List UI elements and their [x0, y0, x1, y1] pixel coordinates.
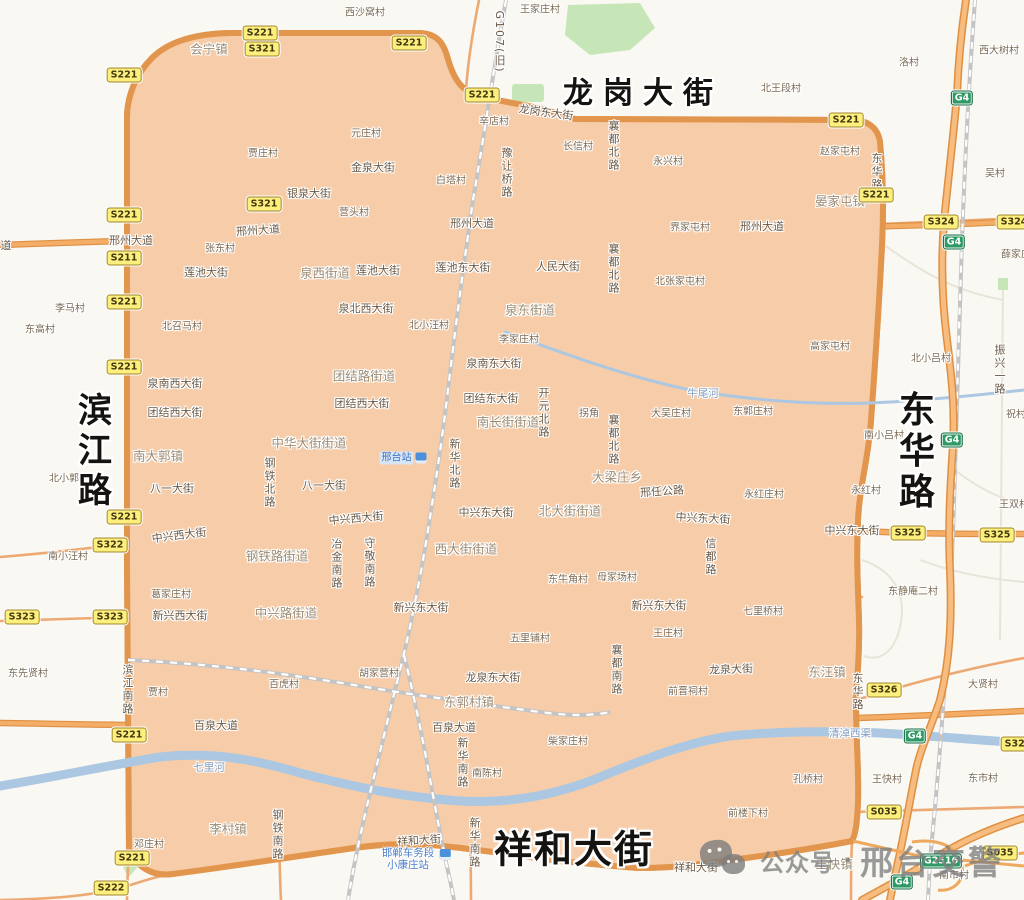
watermark-suffix: 邢台交警	[860, 836, 1004, 884]
road-label: 八一大街	[150, 480, 194, 496]
town-label: 南大郭镇	[133, 446, 183, 465]
village-label: 李马村	[55, 300, 85, 315]
route-shield-s325: S325	[891, 526, 926, 541]
water-label: 七里河	[193, 760, 225, 775]
village-label: 西沙窝村	[345, 4, 385, 19]
village-label: 贾村	[148, 684, 168, 699]
station-line1: 邯郸车务段	[382, 847, 435, 859]
town-label: 大梁庄乡	[592, 467, 642, 486]
village-label: 北召马村	[162, 318, 202, 333]
town-label: 中兴路街道	[255, 603, 318, 622]
watermark-separator: ·	[843, 846, 852, 874]
road-label: 邢任公路	[639, 481, 684, 500]
town-label: 团结路街道	[333, 366, 396, 385]
village-label: 前晋祠村	[668, 683, 708, 698]
map-label-layer: 邢台站 邯郸车务段 小康庄站 龙岗东大街金泉大街银泉大街道邢州大道邢州大道邢州大…	[0, 0, 1024, 900]
town-label: 会宁镇	[190, 39, 228, 58]
route-shield-s324: S324	[997, 215, 1024, 230]
route-shield-s324: S324	[924, 215, 959, 230]
village-label: 张东村	[205, 240, 235, 255]
train-station-icon	[439, 849, 450, 860]
village-label: 百虎村	[269, 676, 299, 691]
railway-station-label-xingtai: 邢台站	[380, 452, 427, 465]
road-label: 团结东大街	[464, 390, 519, 406]
village-label: 五里铺村	[510, 630, 550, 645]
route-shield-s322: S322	[93, 538, 128, 553]
road-label-vertical: 新华南路	[454, 737, 470, 789]
village-label: 母家场村	[597, 569, 637, 584]
route-shield-s222: S222	[94, 881, 129, 896]
route-shield-s326: S326	[867, 683, 902, 698]
village-label: 界家屯村	[670, 219, 710, 234]
village-label: 葛家庄村	[151, 586, 191, 601]
road-label-vertical: 信都路	[702, 538, 718, 577]
road-label: 龙泉东大街	[466, 669, 521, 685]
village-label: 赵家屯村	[820, 143, 860, 158]
village-label: 王庄村	[653, 625, 683, 640]
village-label: 贾庄村	[248, 145, 278, 160]
road-label: 中兴东大街	[825, 522, 880, 538]
village-label: 长信村	[563, 138, 593, 153]
route-shield-s321: S321	[245, 42, 280, 57]
village-label: 王双村	[999, 496, 1024, 511]
route-shield-s221: S221	[107, 510, 142, 525]
village-label: 辛店村	[479, 113, 509, 128]
road-label: 中兴东大街	[675, 509, 731, 528]
road-label: 银泉大街	[287, 185, 331, 201]
town-label: 南长街街道	[477, 412, 540, 431]
road-label-vertical: G107(旧)	[491, 10, 507, 73]
road-label: 新兴东大街	[394, 599, 449, 615]
watermark-prefix: 公众号	[760, 843, 835, 878]
road-label: 邢州大道	[740, 218, 784, 234]
road-label-vertical: 襄都北路	[605, 414, 621, 466]
village-label: 李家庄村	[499, 331, 539, 346]
village-label: 北张家屯村	[655, 273, 705, 288]
road-label-vertical: 冶金南路	[328, 538, 344, 590]
route-shield-g4: G4	[943, 235, 965, 250]
road-label-vertical: 东华路	[849, 673, 865, 712]
village-label: 薛家庄	[1001, 246, 1024, 261]
village-label: 东牛角村	[548, 571, 588, 586]
village-label: 邓庄村	[134, 836, 164, 851]
station-name: 邢台站	[380, 452, 414, 465]
road-label: 邢州大道	[450, 215, 494, 231]
route-shield-s221: S221	[465, 88, 500, 103]
road-label: 泉南西大街	[148, 375, 203, 391]
village-label: 前楼下村	[728, 805, 768, 820]
route-shield-s221: S221	[829, 113, 864, 128]
boundary-road-label-big: 滨江路	[68, 392, 117, 512]
village-label: 孔桥村	[793, 771, 823, 786]
village-label: 南小汪村	[48, 548, 88, 563]
road-label: 邢州大道	[109, 232, 153, 248]
village-label: 拐角	[579, 405, 599, 420]
route-shield-s323: S323	[5, 610, 40, 625]
road-label: 新兴西大街	[153, 607, 208, 623]
village-label: 北小汪村	[409, 317, 449, 332]
village-label: 大吴庄村	[651, 405, 691, 420]
road-label-vertical: 守敬南路	[361, 537, 377, 589]
route-shield-s221: S221	[859, 188, 894, 203]
village-label: 东静庵二村	[888, 583, 938, 598]
village-label: 永红庄村	[744, 486, 784, 501]
road-label-vertical: 新华北路	[446, 438, 462, 490]
road-label-vertical: 振兴一路	[991, 344, 1007, 396]
village-label: 北王段村	[761, 80, 801, 95]
route-shield-s325: S325	[1001, 737, 1024, 752]
water-label: 清淖西渠	[829, 726, 871, 741]
village-label: 王快村	[872, 771, 902, 786]
town-label: 泉西街道	[300, 263, 350, 282]
map-canvas: 邢台站 邯郸车务段 小康庄站 龙岗东大街金泉大街银泉大街道邢州大道邢州大道邢州大…	[0, 0, 1024, 900]
village-label: 胡家营村	[359, 665, 399, 680]
boundary-road-label-big: 东华路	[887, 391, 939, 514]
route-shield-s221: S221	[392, 36, 427, 51]
town-label: 泉东街道	[505, 300, 555, 319]
road-label-vertical: 襄都南路	[608, 644, 624, 696]
watermark: 公众号 · 邢台交警	[700, 836, 1004, 884]
route-shield-s221: S221	[107, 208, 142, 223]
village-label: 东先贤村	[8, 665, 48, 680]
road-label-vertical: 滨江南路	[119, 664, 135, 716]
road-label-vertical: 新华南路	[466, 817, 482, 869]
village-label: 永红村	[851, 482, 881, 497]
road-label: 八一大街	[302, 477, 346, 493]
road-label: 龙泉大街	[709, 660, 754, 678]
town-label: 东郭村镇	[444, 692, 494, 711]
road-label: 百泉大道	[432, 719, 476, 735]
route-shield-g4: G4	[941, 433, 963, 448]
village-label: 王家庄村	[520, 1, 560, 16]
route-shield-s221: S221	[112, 728, 147, 743]
route-shield-s221: S221	[115, 851, 150, 866]
village-label: 高家屯村	[810, 338, 850, 353]
road-label-vertical: 钢铁南路	[269, 809, 285, 861]
town-label: 李村镇	[209, 819, 247, 838]
road-label: 莲池东大街	[436, 259, 491, 275]
road-label: 泉北西大街	[339, 300, 394, 316]
wechat-icon	[700, 840, 752, 880]
route-shield-s221: S221	[107, 360, 142, 375]
route-shield-s221: S221	[107, 295, 142, 310]
village-label: 西大树村	[979, 42, 1019, 57]
road-label-vertical: 襄都北路	[605, 243, 621, 295]
road-label-vertical: 豫让桥路	[498, 147, 514, 199]
village-label: 营头村	[339, 204, 369, 219]
village-label: 祝村	[1006, 406, 1024, 421]
village-label: 东市村	[968, 770, 998, 785]
route-shield-s211: S211	[107, 251, 142, 266]
water-label: 牛尾河	[687, 386, 719, 401]
town-label: 中华大街街道	[271, 433, 346, 452]
route-shield-g4: G4	[904, 729, 926, 744]
road-label: 新兴东大街	[632, 597, 687, 613]
village-label: 洛村	[899, 54, 919, 69]
road-label: 金泉大街	[351, 159, 395, 175]
village-label: 元庄村	[351, 125, 381, 140]
route-shield-s221: S221	[243, 26, 278, 41]
village-label: 北小吕村	[911, 350, 951, 365]
road-label: 莲池大街	[184, 264, 228, 280]
village-label: 南陈村	[472, 765, 502, 780]
town-label: 晏家屯镇	[815, 191, 865, 210]
road-label: 邢州大道	[235, 220, 280, 239]
train-station-icon	[416, 453, 427, 464]
boundary-road-label-big: 龙岗大街	[563, 68, 723, 112]
route-shield-s321: S321	[247, 197, 282, 212]
village-label: 七里桥村	[743, 603, 783, 618]
road-label-vertical: 襄都北路	[605, 120, 621, 172]
village-label: 白塔村	[436, 172, 466, 187]
road-label-vertical: 钢铁北路	[261, 457, 277, 509]
route-shield-s325: S325	[980, 528, 1015, 543]
town-label: 钢铁路街道	[246, 546, 309, 565]
village-label: 永兴村	[653, 153, 683, 168]
road-label: 中兴西大街	[328, 508, 384, 529]
road-label: 百泉大道	[194, 717, 238, 733]
road-label: 中兴西大街	[151, 524, 208, 547]
road-label: 莲池大街	[356, 262, 400, 278]
village-label: 大贤村	[968, 676, 998, 691]
route-shield-g4: G4	[951, 91, 973, 106]
village-label: 东高村	[25, 321, 55, 336]
village-label: 柴家庄村	[548, 733, 588, 748]
road-label: 道	[1, 237, 12, 253]
village-label: 东郭庄村	[733, 403, 773, 418]
road-label: 中兴东大街	[459, 504, 514, 520]
route-shield-s323: S323	[93, 610, 128, 625]
road-label-vertical: 东华路	[868, 153, 884, 192]
road-label: 祥和大街	[396, 830, 441, 849]
route-shield-s221: S221	[107, 68, 142, 83]
town-label: 东汪镇	[808, 662, 846, 681]
boundary-road-label-big: 祥和大街	[494, 819, 654, 874]
railway-station-label-xiaokangzhuang: 邯郸车务段 小康庄站	[382, 847, 435, 871]
road-label: 泉南东大街	[467, 355, 522, 371]
road-label: 人民大街	[536, 258, 580, 274]
town-label: 西大街街道	[435, 539, 498, 558]
route-shield-s035: S035	[867, 805, 902, 820]
road-label: 团结西大街	[148, 404, 203, 420]
village-label: 吴村	[985, 165, 1005, 180]
road-label: 团结西大街	[335, 395, 390, 411]
town-label: 北大街街道	[539, 501, 602, 520]
station-line2: 小康庄站	[387, 859, 429, 871]
